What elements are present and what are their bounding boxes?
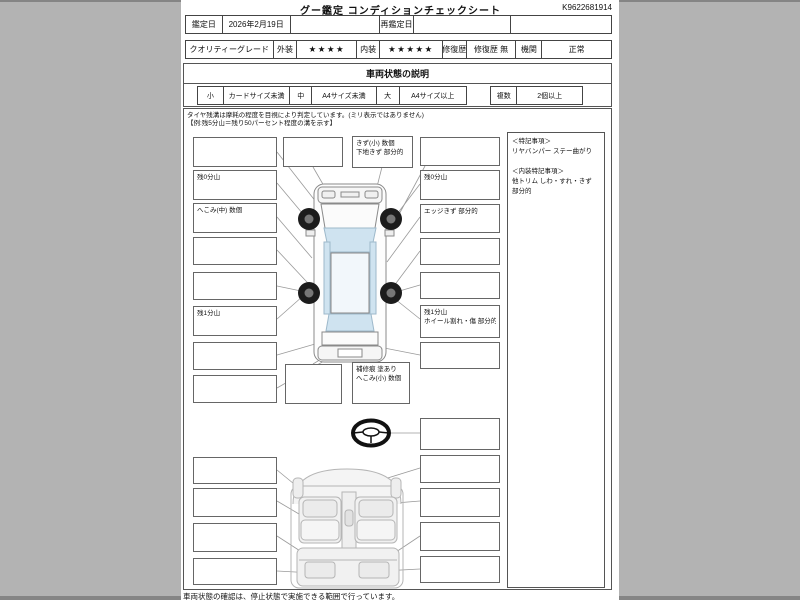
special-notes-panel: ＜特記事項＞ リヤバンパー ステー曲がり ＜内装特記事項＞ 他トリム しわ・すれ…	[507, 132, 605, 588]
callout-box-interior-left-1	[193, 457, 277, 484]
condition-explanation-title: 車両状態の説明	[184, 64, 611, 84]
tire-note: タイヤ残溝は摩耗の程度を目視により判定しています。(ミリ表示ではありません) 【…	[187, 112, 517, 128]
interior-label: 内装	[357, 41, 380, 58]
callout-box-right-6: 残1分山ホイール割れ・傷 部分的	[420, 305, 500, 338]
callout-box-left-3: へこみ(中) 数個	[193, 203, 277, 233]
callout-box-left-6: 残1分山	[193, 306, 277, 336]
callout-box-left-2: 残0分山	[193, 170, 277, 200]
multi-legend-table: 複数 2個以上	[490, 86, 583, 105]
empty-cell	[511, 16, 611, 33]
condition-check-sheet: グー鑑定 コンディションチェックシート K9622681914 鑑定日 2026…	[0, 0, 800, 600]
repair-history-label: 修復歴	[443, 41, 467, 58]
callout-box-interior-left-3	[193, 523, 277, 552]
callout-box-right-3: エッジきず 部分的	[420, 204, 500, 233]
callout-box-right-1	[420, 137, 500, 166]
repair-history-value: 修復歴 無	[467, 41, 517, 58]
callout-text: へこみ(小) 数個	[356, 374, 406, 383]
legend-multi-desc: 2個以上	[517, 87, 582, 104]
callout-box-left-8	[193, 375, 277, 403]
appraisal-date-table: 鑑定日 2026年2月19日 再鑑定日	[185, 15, 612, 34]
legend-size-small: 小	[198, 87, 224, 104]
engine-label: 機関	[516, 41, 542, 58]
appraisal-date-value: 2026年2月19日	[223, 16, 291, 33]
tire-note-line2: 【例:残5分山＝残り50パーセント程度の溝を示す】	[187, 120, 517, 128]
callout-box-interior-right-1	[420, 455, 500, 483]
size-legend-table: 小 カードサイズ未満 中 A4サイズ未満 大 A4サイズ以上	[197, 86, 467, 105]
callout-text: 残0分山	[197, 173, 273, 182]
steering-wheel-icon	[353, 421, 389, 446]
callout-text: 下地きず 部分的	[356, 148, 409, 157]
legend-desc-large: A4サイズ以上	[400, 87, 467, 104]
grade-table: クオリティーグレード 外装 ★★★★ 内装 ★★★★★ 修復歴 修復歴 無 機関…	[185, 40, 612, 59]
callout-box-right-5	[420, 272, 500, 299]
callout-box-interior-left-4	[193, 558, 277, 585]
interior-top-view	[291, 469, 403, 588]
callout-box-interior-right-2	[420, 488, 500, 517]
callout-box-right-2: 残0分山	[420, 170, 500, 200]
callout-text: 補修痕 塗あり	[356, 365, 406, 374]
callout-box-right-7	[420, 342, 500, 369]
callout-box-steering	[420, 418, 500, 450]
callout-box-left-5	[193, 272, 277, 300]
callout-box-bottom-2: 補修痕 塗ありへこみ(小) 数個	[352, 362, 410, 404]
callout-box-right-4	[420, 238, 500, 265]
special-notes-heading: ＜特記事項＞	[512, 137, 600, 147]
empty-cell	[291, 16, 381, 33]
legend-size-medium: 中	[290, 87, 312, 104]
exterior-star-rating: ★★★★	[297, 41, 357, 58]
callout-box-top-1	[283, 137, 343, 167]
callout-box-interior-right-4	[420, 556, 500, 583]
legend-desc-medium: A4サイズ未満	[312, 87, 377, 104]
legend-desc-small: カードサイズ未満	[224, 87, 291, 104]
callout-box-left-1	[193, 137, 277, 167]
exterior-label: 外装	[274, 41, 298, 58]
callout-box-left-7	[193, 342, 277, 370]
interior-notes-item: 他トリム しわ・すれ・きず 部分的	[512, 177, 600, 197]
callout-text: 残1分山	[424, 308, 496, 317]
special-notes-item: リヤバンパー ステー曲がり	[512, 147, 600, 157]
callout-box-top-2: きず(小) 数個下地きず 部分的	[352, 136, 413, 168]
callout-box-left-4	[193, 237, 277, 265]
engine-value: 正常	[542, 41, 611, 58]
spacer	[512, 157, 600, 167]
legend-size-large: 大	[377, 87, 400, 104]
callout-text: 残0分山	[424, 173, 496, 182]
callout-box-interior-left-2	[193, 488, 277, 517]
legend-multi-key: 複数	[491, 87, 517, 104]
callout-text: ホイール割れ・傷 部分的	[424, 317, 496, 326]
callout-box-interior-right-3	[420, 522, 500, 551]
callout-text: へこみ(中) 数個	[197, 206, 273, 215]
appraisal-date-label: 鑑定日	[186, 16, 223, 33]
car-top-view	[306, 184, 394, 362]
interior-star-rating: ★★★★★	[380, 41, 443, 58]
re-appraisal-date-value	[414, 16, 512, 33]
ref-number: K9622681914	[481, 3, 612, 12]
callout-box-bottom-1	[285, 364, 342, 404]
footer-note: 車両状態の確認は、停止状態で実施できる範囲で行っています。	[183, 591, 399, 600]
tire-note-line1: タイヤ残溝は摩耗の程度を目視により判定しています。(ミリ表示ではありません)	[187, 112, 517, 120]
callout-text: 残1分山	[197, 309, 273, 318]
callout-text: エッジきず 部分的	[424, 207, 496, 216]
re-appraisal-date-label: 再鑑定日	[380, 16, 414, 33]
interior-notes-heading: ＜内装特記事項＞	[512, 167, 600, 177]
callout-text: きず(小) 数個	[356, 139, 409, 148]
quality-grade-label: クオリティーグレード	[186, 41, 274, 58]
